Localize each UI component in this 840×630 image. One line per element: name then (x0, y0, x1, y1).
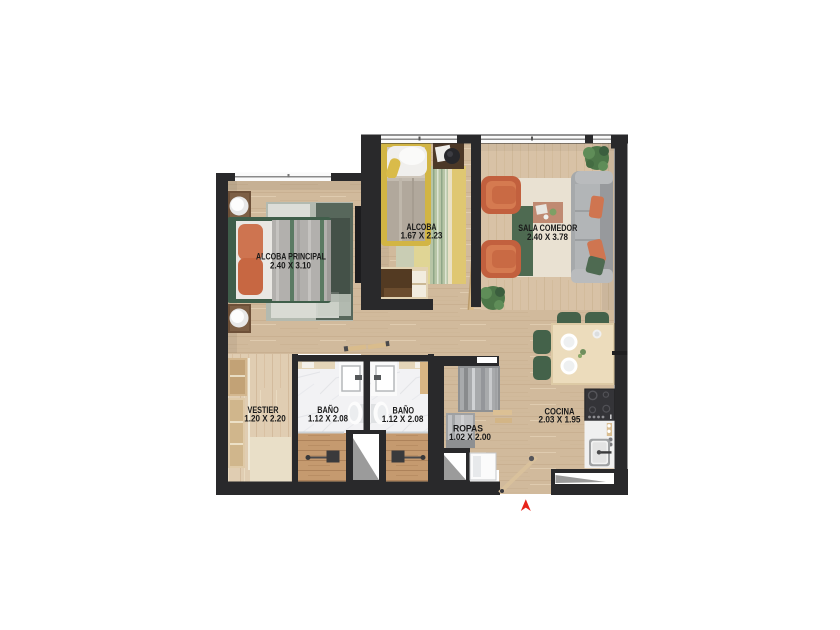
svg-text:1.12 X 2.08: 1.12 X 2.08 (382, 414, 424, 424)
svg-text:1.12 X 2.08: 1.12 X 2.08 (308, 414, 348, 424)
svg-text:2.40 X 3.78: 2.40 X 3.78 (527, 232, 568, 242)
svg-text:2.40 X 3.10: 2.40 X 3.10 (270, 261, 311, 271)
svg-text:1.02 X 2.00: 1.02 X 2.00 (449, 432, 491, 442)
svg-text:2.03 X 1.95: 2.03 X 1.95 (539, 415, 581, 425)
svg-text:1.67 X 2.23: 1.67 X 2.23 (401, 231, 443, 241)
svg-text:1.20 X 2.20: 1.20 X 2.20 (244, 414, 286, 424)
